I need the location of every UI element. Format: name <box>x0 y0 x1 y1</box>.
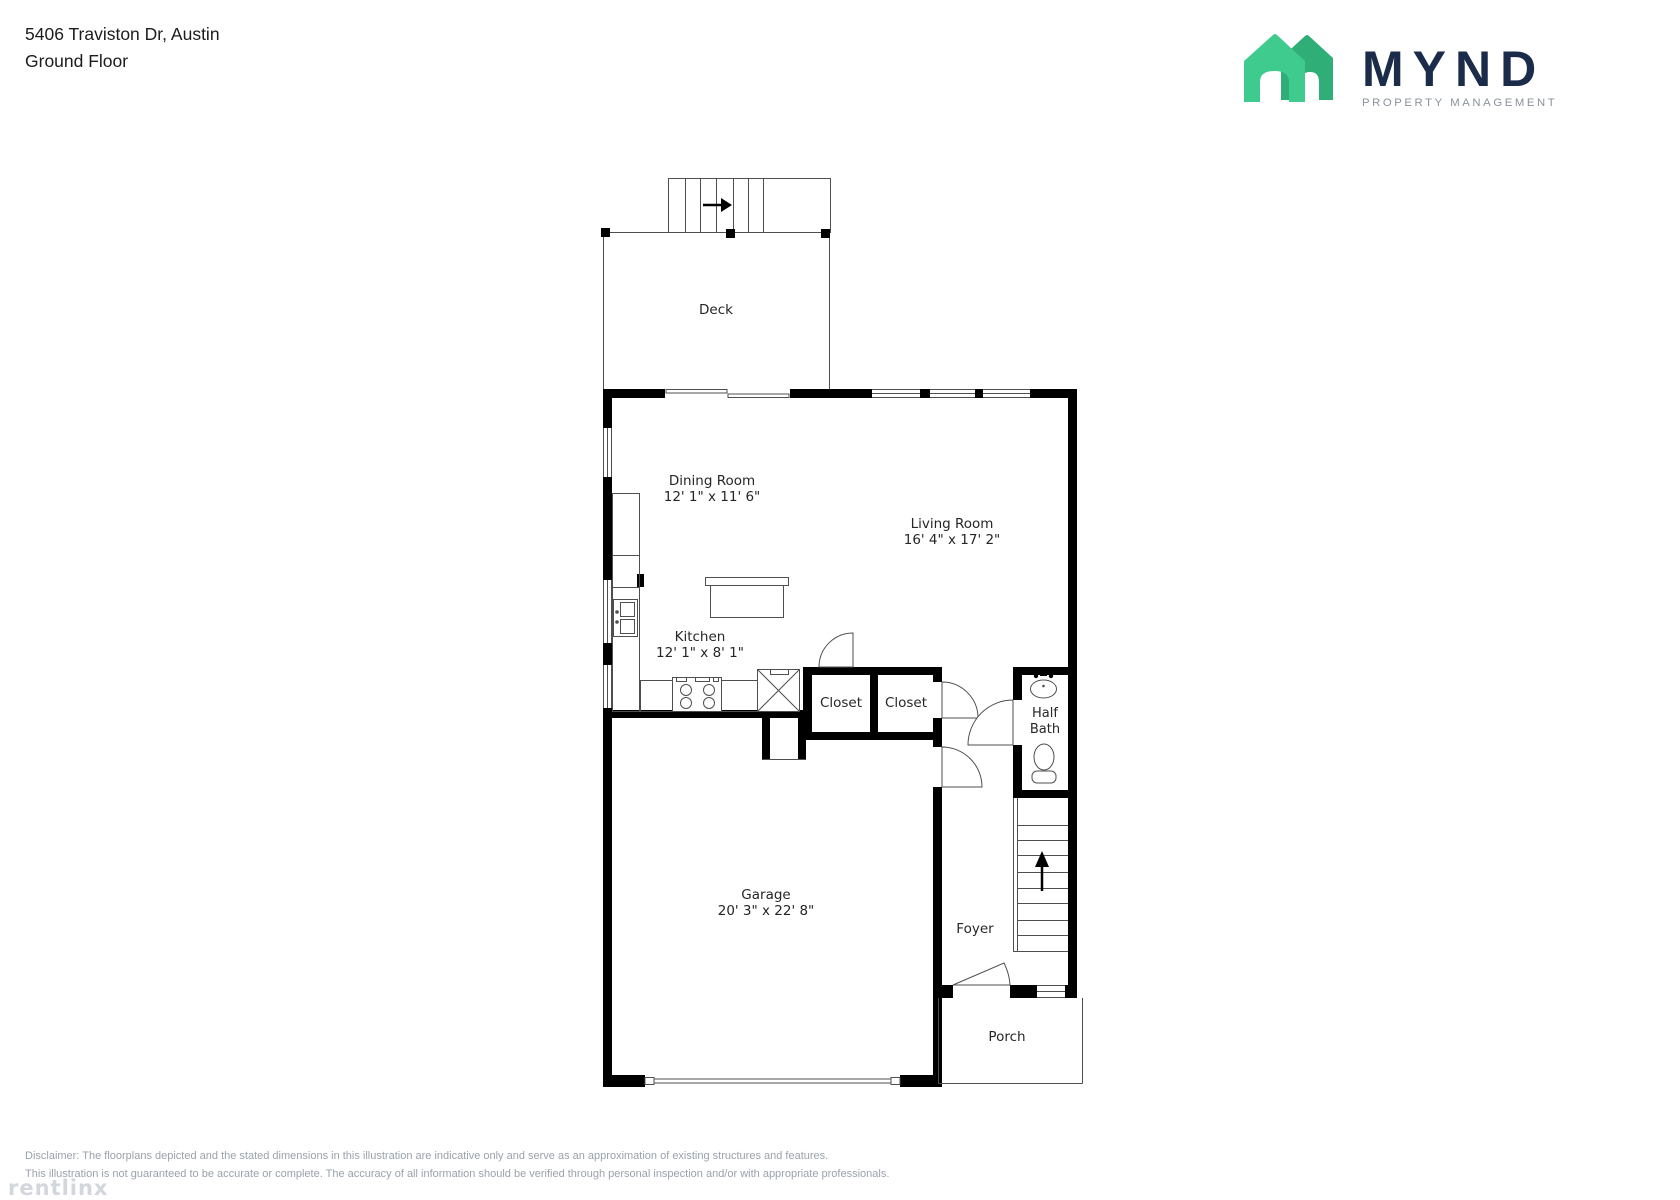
room-label-foyer: Foyer <box>956 921 993 937</box>
room-label-kitchen: Kitchen12' 1" x 8' 1" <box>656 629 744 661</box>
garage-entry-door-arc <box>942 747 982 787</box>
stove <box>673 678 722 712</box>
closet1-door-arc <box>819 633 853 667</box>
room-label-porch: Porch <box>988 1029 1025 1045</box>
room-label-deck: Deck <box>699 302 733 318</box>
rentlinx-watermark: rentlinx <box>8 1176 108 1200</box>
room-label-dining-room: Dining Room12' 1" x 11' 6" <box>664 473 761 505</box>
deck-stairs <box>669 179 831 233</box>
garage-door <box>645 1078 900 1085</box>
refrigerator <box>758 670 800 712</box>
wall-right <box>1068 398 1077 998</box>
wall-counter-stub <box>637 574 644 587</box>
deck-stairs-direction-arrow-icon <box>703 198 732 212</box>
wall-halfbath-bottom <box>1013 790 1068 798</box>
wall-utility-nook-left <box>762 718 770 760</box>
wall-left <box>603 389 612 1087</box>
room-label-closet-1: Closet <box>820 695 862 711</box>
disclaimer-line-1: Disclaimer: The floorplans depicted and … <box>25 1150 828 1162</box>
wall-utility-nook-right <box>798 718 806 760</box>
room-label-garage: Garage20' 3" x 22' 8" <box>718 887 815 919</box>
room-label-living-room: Living Room16' 4" x 17' 2" <box>904 516 1001 548</box>
kitchen-sink <box>614 600 638 637</box>
front-door-arc <box>953 963 1010 985</box>
stairs-up-arrow-icon <box>1035 851 1049 891</box>
room-label-half-bath: Half Bath <box>1019 706 1071 738</box>
wall-closet-mid <box>870 667 878 740</box>
wall-closet-bottom <box>803 732 942 740</box>
toilet <box>1032 744 1056 783</box>
floorplan-drawing <box>0 0 1680 1188</box>
room-label-closet-2: Closet <box>885 695 927 711</box>
closet2-door-arc <box>942 682 978 718</box>
disclaimer-line-2: This illustration is not guaranteed to b… <box>25 1168 889 1180</box>
kitchen-island <box>706 578 789 618</box>
wall-garage-right <box>933 667 942 1075</box>
